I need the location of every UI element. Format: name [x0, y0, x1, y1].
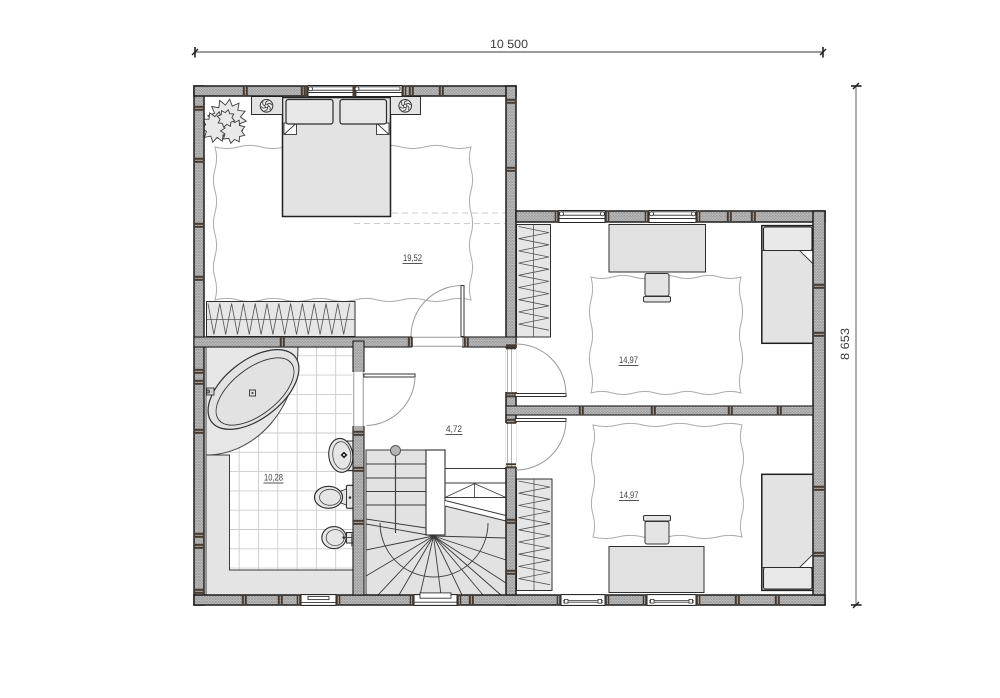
svg-text:8 653: 8 653 — [838, 328, 852, 360]
svg-text:10 500: 10 500 — [490, 37, 528, 51]
svg-text:4,72: 4,72 — [446, 424, 462, 435]
svg-text:14,97: 14,97 — [619, 355, 638, 366]
svg-text:10,28: 10,28 — [264, 473, 283, 484]
svg-text:19,52: 19,52 — [403, 253, 422, 264]
svg-text:14,97: 14,97 — [620, 490, 639, 501]
